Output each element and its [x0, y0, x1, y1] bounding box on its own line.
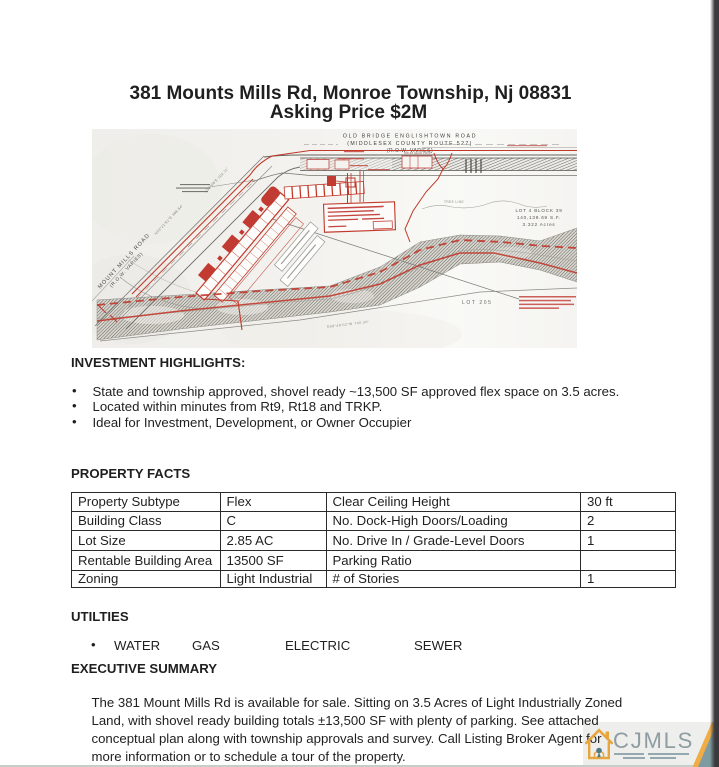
svg-text:TREE LINE: TREE LINE	[444, 200, 464, 204]
svg-text:140,139.69 S.F.: 140,139.69 S.F.	[517, 215, 561, 220]
svg-text:DRUM HEAD PROP: DRUM HEAD PROP	[404, 151, 432, 155]
svg-text:OLD BRIDGE ENGLISHTOWN ROAD: OLD BRIDGE ENGLISHTOWN ROAD	[343, 134, 477, 140]
svg-text:LOT 205: LOT 205	[462, 300, 493, 306]
svg-text:LOT 4 BLOCK 39: LOT 4 BLOCK 39	[515, 208, 562, 213]
svg-text:(MIDDLESEX COUNTY ROUTE 527): (MIDDLESEX COUNTY ROUTE 527)	[347, 141, 473, 147]
svg-text:3.322 Acres: 3.322 Acres	[522, 222, 555, 227]
